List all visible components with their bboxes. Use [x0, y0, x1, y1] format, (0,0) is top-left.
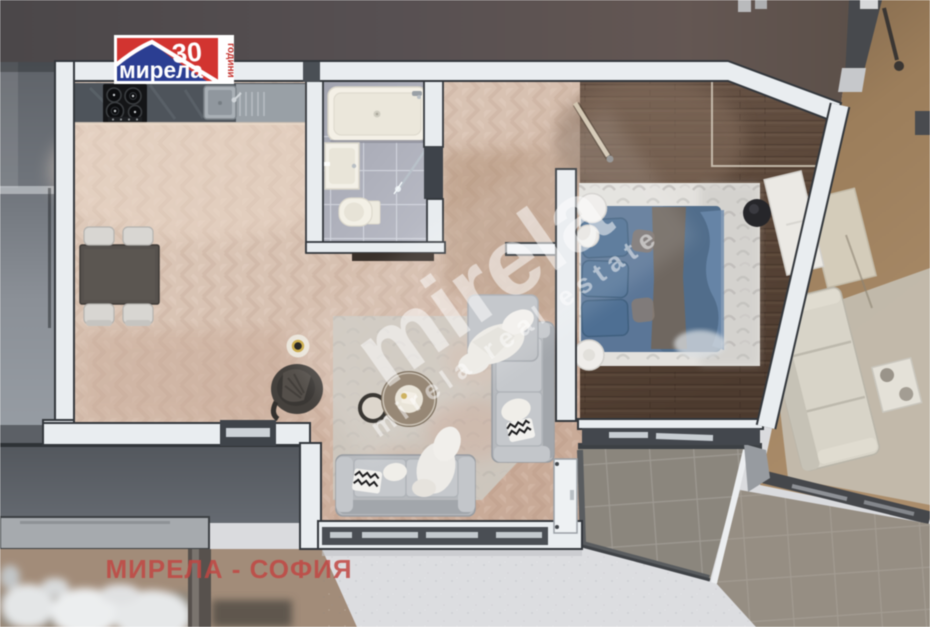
- svg-text:години: години: [225, 43, 236, 78]
- svg-text:МИРЕЛА - СОФИЯ: МИРЕЛА - СОФИЯ: [105, 554, 352, 584]
- svg-text:30: 30: [171, 37, 204, 70]
